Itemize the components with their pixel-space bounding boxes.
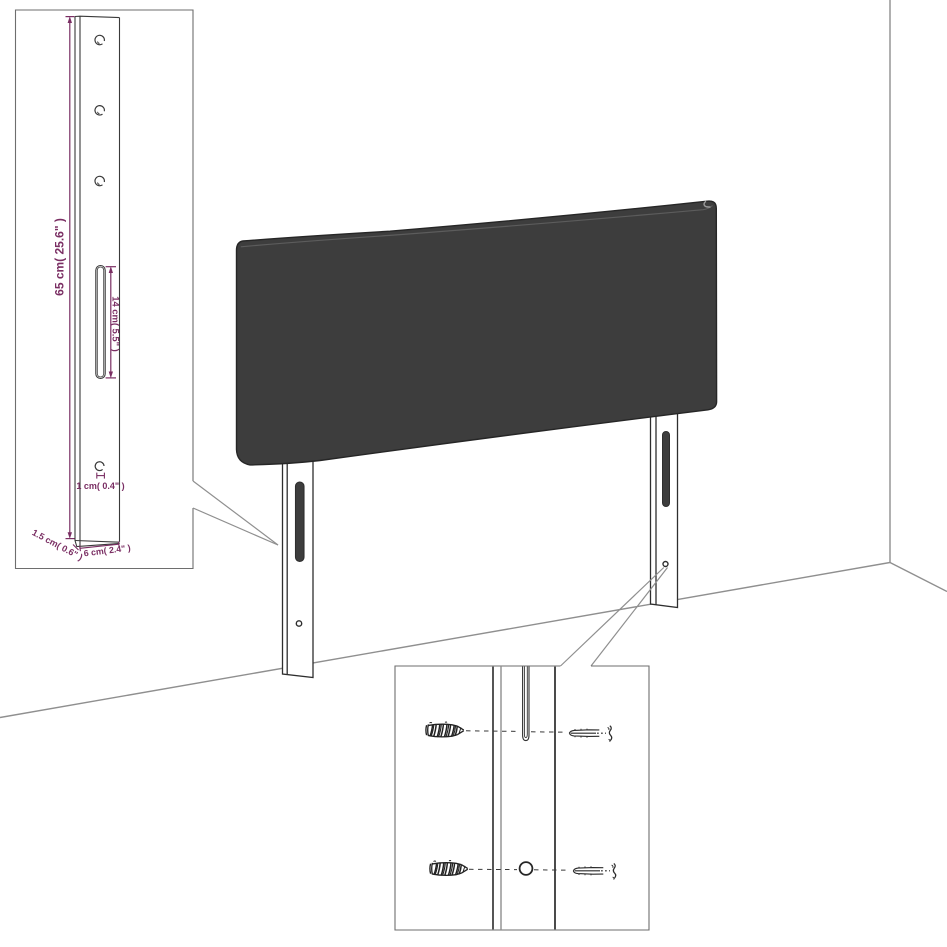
svg-text:1 cm( 0.4" ): 1 cm( 0.4" ) — [76, 481, 124, 491]
svg-text:65 cm( 25.6" ): 65 cm( 25.6" ) — [53, 218, 67, 296]
svg-text:14 cm( 5.5" ): 14 cm( 5.5" ) — [110, 296, 121, 352]
